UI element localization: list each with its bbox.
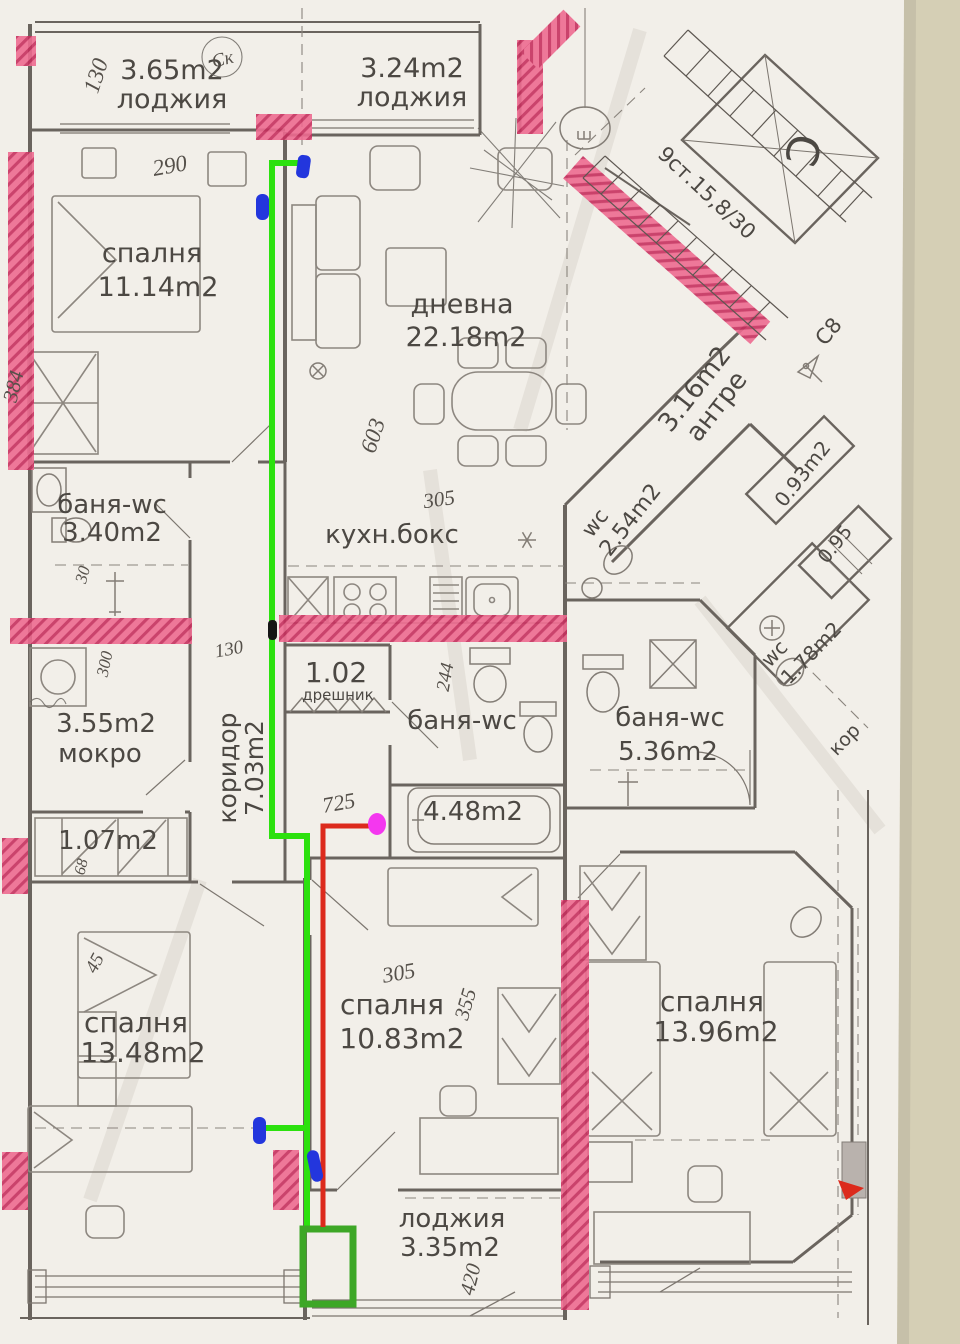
magenta-dot [368, 813, 386, 835]
blue-mark [253, 1117, 266, 1144]
room-label-name: спалня [340, 988, 444, 1021]
highlight-wall [8, 152, 34, 470]
room-label-name: баня-wc [615, 703, 725, 733]
room-label-area: 3.24m2 [360, 53, 464, 84]
highlight-wall [561, 900, 589, 1310]
room-label-area: 11.14m2 [98, 272, 219, 303]
highlight-wall [10, 618, 192, 644]
room-label-area: 10.83m2 [339, 1022, 464, 1055]
svg-text:7.03m2: 7.03m2 [240, 720, 269, 816]
highlight-wall [273, 1150, 299, 1210]
room-label-name: лоджия [117, 84, 228, 115]
room-label-area: 3.35m2 [400, 1233, 500, 1263]
highlight-wall [2, 838, 28, 894]
room-label-name: баня-wc [407, 706, 517, 736]
highlight-wall [16, 36, 36, 66]
room-label-area: 13.48m2 [80, 1036, 205, 1069]
room-label-area: 22.18m2 [406, 322, 527, 353]
room-label-name: спалня [102, 238, 202, 269]
room-label-name: спалня [660, 985, 764, 1018]
room-label-area: 4.48m2 [423, 797, 523, 827]
room-label-name: баня-wc [57, 490, 167, 520]
room-label-corridor: коридор 7.03m2 [213, 713, 269, 824]
photo-background [0, 0, 960, 1344]
room-label-area: 3.40m2 [62, 518, 162, 548]
black-mark [268, 620, 277, 640]
hand-dim: 305 [421, 485, 457, 513]
highlight-wall [279, 615, 567, 642]
room-label-name: дрешник [302, 686, 373, 704]
room-label-name: лоджия [399, 1204, 505, 1234]
room-label-area: 13.96m2 [653, 1015, 778, 1048]
room-label-name: лоджия [357, 82, 468, 113]
blue-mark [256, 194, 269, 220]
room-label-name: спалня [84, 1006, 188, 1039]
room-label-area: 1.02 [305, 656, 367, 689]
floorplan-photo: 3.65m2 лоджия 3.24m2 лоджия спалня 11.14… [0, 0, 960, 1344]
room-label-area: 1.07m2 [58, 826, 158, 856]
room-label-area: 3.55m2 [56, 709, 156, 739]
room-label-name: кухн.бокс [325, 520, 459, 550]
svg-text:коридор: коридор [213, 713, 242, 824]
highlight-wall [256, 114, 312, 140]
room-label-name: дневна [410, 289, 513, 320]
highlight-wall [2, 1152, 28, 1210]
room-label-name: мокро [58, 739, 142, 769]
room-label-area: 3.65m2 [120, 55, 224, 86]
room-label-area: 5.36m2 [618, 737, 718, 767]
